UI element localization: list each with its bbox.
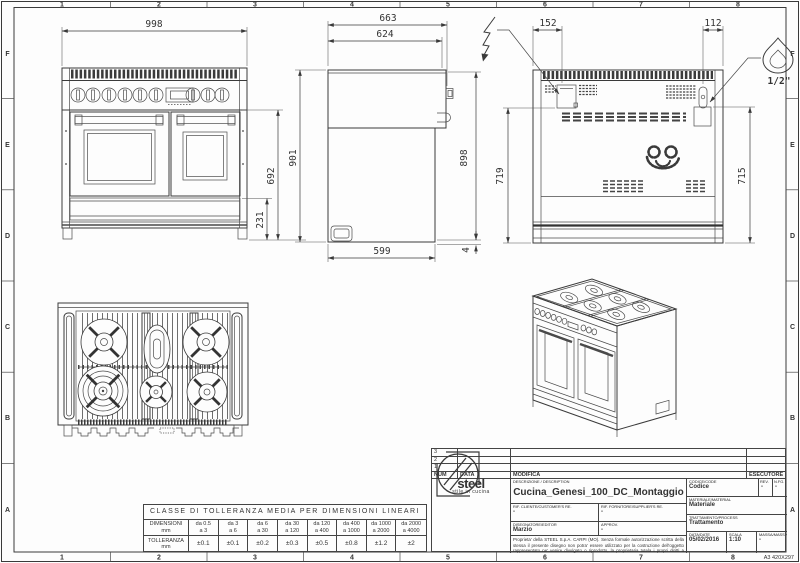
grid-col: 5: [446, 2, 450, 9]
drawing-title: Cucina_Genesi_100_DC_Montaggio: [511, 487, 686, 498]
rif-cliente-value: -: [511, 509, 598, 516]
data-cell: DATA/DATE 05/02/2016: [687, 532, 727, 553]
burner-right-rear: [183, 319, 229, 365]
grid-col: 4: [350, 2, 354, 9]
nfg-cell: N.FG. -: [773, 479, 787, 497]
modifica-header: MODIFICA: [511, 472, 747, 480]
rev-esecutore: [747, 457, 785, 465]
leg: [63, 228, 72, 239]
dim-depth-top: 624: [376, 29, 393, 40]
top-view: [58, 303, 248, 436]
range-cell: da 2000a 4000: [396, 520, 426, 536]
materiale-value: Materiale: [687, 502, 787, 509]
grid-col: 3: [253, 2, 257, 9]
oven-door-left: [70, 112, 169, 196]
range-to: a 30: [257, 528, 268, 534]
dim-gas-offset: 112: [704, 18, 721, 29]
grid-labels-left: F E D C B A: [5, 51, 10, 514]
iso-side-plate: [656, 400, 669, 414]
grid-col: 2: [157, 2, 161, 9]
leg: [238, 228, 247, 239]
tolerance-value: ±0.2: [248, 536, 278, 552]
electrical-box: [557, 85, 578, 108]
grid-row: E: [790, 142, 795, 149]
rev-value: -: [759, 484, 772, 491]
side-hook: [437, 113, 451, 122]
tolerance-tol-label: TOLLERANZA mm: [144, 536, 189, 552]
legal-notice: Proprieta' della STEEL S.p.A. CARPI (MO)…: [511, 536, 687, 553]
iso-doors: [533, 325, 617, 424]
rear-view: [533, 70, 723, 243]
scala-value: 1:10: [727, 537, 756, 544]
grid-col: 7: [639, 555, 643, 562]
grid-col: 3: [253, 555, 257, 562]
grid-row: B: [790, 415, 795, 422]
dim-electric-offset: 152: [539, 18, 556, 29]
grid-col: 6: [543, 2, 547, 9]
range-to: a 2000: [373, 528, 390, 534]
range-to: a 1000: [343, 528, 360, 534]
side-rail-left: [64, 313, 74, 419]
dim-electric-height: 719: [495, 167, 506, 184]
front-dimensions: 998 692 231: [62, 19, 306, 240]
codice-cell: CODICE/CODE Codice: [687, 479, 759, 497]
dim-drawer-height: 231: [255, 211, 266, 228]
trattamento-cell: TRATTAMENTO/PROCESS Trattamento: [687, 515, 787, 532]
grid-col: 8: [736, 2, 740, 9]
codice-value: Codice: [687, 484, 758, 491]
range-cell: da 120a 400: [308, 520, 338, 536]
dim-floor-gap: 4: [461, 247, 472, 253]
grid-labels-bottom: 1 2 3 4 5 6 7 8 A3 420X297: [60, 555, 794, 562]
massa-label: MASSA/MASS Kg: [757, 532, 787, 537]
data-value: 05/02/2016: [687, 537, 726, 544]
esecutore-header: ESECUTORE: [747, 472, 785, 480]
front-brackets: [64, 425, 242, 436]
tolerance-value: ±0.1: [219, 536, 249, 552]
range-to: a 4000: [403, 528, 420, 534]
rev-modifica: [511, 457, 747, 465]
grid-row: F: [5, 51, 10, 58]
display: [166, 88, 193, 105]
massa-value: -: [757, 537, 787, 544]
revision-table: 3 2 1 NUM DATA MODIFICA ESECUTORE: [432, 449, 785, 479]
sheet-format: A3 420X297: [764, 555, 794, 561]
disegnatore-value: Marzio: [511, 527, 598, 534]
grid-col: 7: [639, 2, 643, 9]
unit: mm: [161, 528, 170, 534]
grid-col: 1: [60, 2, 64, 9]
range-cell: da 30a 120: [278, 520, 308, 536]
tolerance-value: ±1.2: [367, 536, 397, 552]
description-cell: DESCRIZIONE / DESCRIPTION Cucina_Genesi_…: [511, 479, 687, 504]
iso-burners: [559, 283, 651, 322]
dim-height-total: 901: [288, 149, 299, 166]
grid-row: D: [5, 233, 10, 240]
rev-modifica: [511, 449, 747, 457]
rif-fornitore-cell: RIF. FORNITORE/SUPPLIER'S RE. -: [599, 504, 687, 522]
steel-logo: steel stile in cucina: [432, 479, 511, 553]
rif-cliente-cell: RIF. CLIENTE/CUSTOMER'S RE. -: [511, 504, 599, 522]
rear-dimensions: 152 112 719 715: [495, 18, 755, 243]
title-block: 3 2 1 NUM DATA MODIFICA ESECUTORE steel …: [431, 448, 786, 552]
control-knobs: [71, 88, 229, 102]
grid-col: 5: [446, 555, 450, 562]
dim-depth-bottom: 599: [373, 246, 390, 257]
grid-row: E: [5, 142, 10, 149]
disegnatore-cell: DISEGNATORE/EDITOR Marzio: [511, 522, 599, 536]
description-label: DESCRIZIONE / DESCRIPTION: [511, 479, 686, 484]
grid-labels-right: F E D C B A: [790, 51, 795, 514]
grid-row: C: [790, 324, 795, 331]
gas-thread-label: 1/2": [768, 76, 791, 87]
burner-right-front: [187, 372, 227, 412]
grid-col: 6: [543, 555, 547, 562]
unit: mm: [161, 544, 170, 550]
gas-connection: [694, 87, 711, 126]
burner-center-oval: [144, 325, 170, 373]
massa-cell: MASSA/MASS Kg -: [757, 532, 787, 553]
tolerance-value: ±0.3: [278, 536, 308, 552]
burner-left-front-wok: [78, 366, 128, 416]
tolerance-value: ±0.5: [308, 536, 338, 552]
vent-band: [562, 114, 686, 121]
steel-logo-mark: [432, 449, 484, 499]
vent-slots-lower: [603, 181, 707, 192]
grid-row: D: [790, 233, 795, 240]
dim-door-height: 692: [266, 167, 277, 184]
grid-col: 4: [350, 555, 354, 562]
burner-center-front: [140, 376, 172, 408]
perforated-logo: [647, 147, 679, 169]
materiale-cell: MATERIALE/MATERIAL Materiale: [687, 497, 787, 515]
scala-cell: SCALA 1:10: [727, 532, 757, 553]
range-cell: da 6a 30: [248, 520, 278, 536]
rev-modifica: [511, 464, 747, 472]
vent-slots: [545, 86, 696, 99]
tolerance-value: ±0.8: [337, 536, 367, 552]
side-dimensions: 663 624 901 898 599 4: [288, 13, 481, 262]
grid-col: 2: [157, 555, 161, 562]
tolerance-value: ±2: [396, 536, 426, 552]
dim-depth-total: 663: [379, 13, 396, 24]
dim-gas-height: 715: [737, 167, 748, 184]
rev-esecutore: [747, 449, 785, 457]
storage-drawer: [62, 198, 247, 225]
side-view: [328, 70, 453, 242]
range-to: a 6: [229, 528, 237, 534]
dim-front-width: 998: [145, 19, 162, 30]
tolerance-dim-label: DIMENSIONI mm: [144, 520, 189, 536]
burner-left-rear: [81, 319, 127, 365]
range-cell: da 1000a 2000: [367, 520, 397, 536]
range-to: a 3: [199, 528, 207, 534]
rev-cell: REV. -: [759, 479, 773, 497]
grid-row: C: [5, 324, 10, 331]
side-rail-right: [232, 313, 242, 419]
range-cell: da 3a 6: [219, 520, 249, 536]
approv-cell: APPROV. -: [599, 522, 687, 536]
range-cell: da 0.5a 3: [189, 520, 219, 536]
front-view: [62, 68, 247, 239]
drawing-sheet: 1 2 3 4 5 6 7 8 1 2 3 4 5 6 7 8 A3 420X2…: [0, 0, 800, 563]
tolerance-table-title: CLASSE DI TOLLERANZA MEDIA PER DIMENSION…: [144, 505, 426, 520]
grid-col: 8: [731, 555, 735, 562]
oven-door-right: [171, 112, 240, 196]
grid-col: 1: [60, 555, 64, 562]
dim-height-right: 898: [459, 149, 470, 166]
tolerance-table: CLASSE DI TOLLERANZA MEDIA PER DIMENSION…: [143, 504, 427, 552]
grid-row: A: [5, 507, 10, 514]
isometric-view: [533, 279, 676, 437]
tolerance-value: ±0.1: [189, 536, 219, 552]
approv-value: -: [599, 527, 686, 534]
range-to: a 120: [285, 528, 299, 534]
trattamento-value: Trattamento: [687, 520, 787, 527]
rif-fornitore-value: -: [599, 509, 686, 516]
nfg-value: -: [773, 484, 787, 491]
range-cell: da 400a 1000: [337, 520, 367, 536]
rev-esecutore: [747, 464, 785, 472]
range-to: a 400: [315, 528, 329, 534]
grid-row: A: [790, 507, 795, 514]
grid-row: B: [5, 415, 10, 422]
